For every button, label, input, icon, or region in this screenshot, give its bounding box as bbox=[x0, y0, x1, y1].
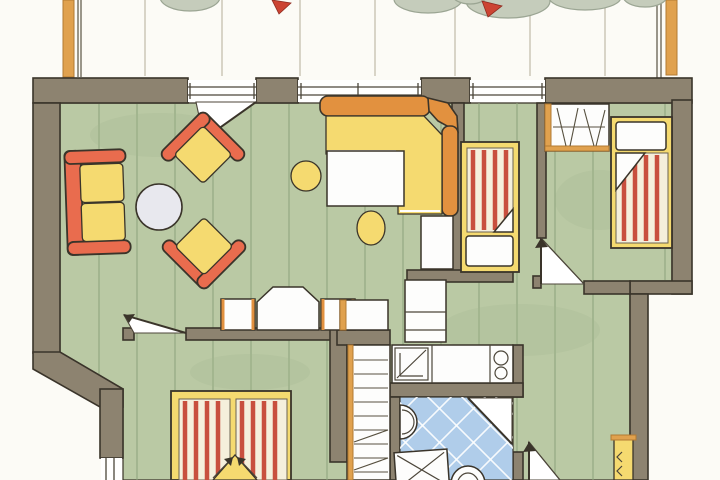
kitchen bbox=[392, 345, 513, 383]
wall-top-right bbox=[545, 78, 692, 103]
bedroom-3 bbox=[171, 391, 291, 480]
wall-bath-top bbox=[390, 383, 523, 397]
wall-closet-band bbox=[337, 330, 390, 345]
side-table bbox=[421, 216, 453, 269]
wall-door-jamb bbox=[533, 276, 541, 288]
pillow bbox=[466, 236, 513, 266]
dining-chair-left bbox=[221, 299, 255, 330]
shelf-column bbox=[347, 345, 390, 480]
wall-closet-vertical bbox=[330, 328, 347, 462]
kitchen-counter bbox=[392, 345, 513, 383]
floor-plan-drawing bbox=[0, 0, 720, 480]
hall-cabinet-tall bbox=[405, 280, 446, 342]
bedroom-1 bbox=[461, 142, 519, 272]
deck-edge-plank-right bbox=[666, 0, 677, 75]
pouf-1 bbox=[291, 161, 321, 191]
floor-plan-canvas bbox=[0, 0, 720, 480]
wall-left-lower bbox=[100, 389, 123, 458]
wardrobe bbox=[545, 104, 609, 151]
wall-right-upper bbox=[672, 100, 692, 294]
sofa bbox=[64, 149, 131, 255]
round-table bbox=[136, 184, 182, 230]
wall-bedroom2-bottom bbox=[584, 281, 630, 294]
wall-top-pier-1 bbox=[256, 78, 298, 103]
hall-cabinet-small bbox=[340, 300, 388, 330]
pouf-2 bbox=[357, 211, 385, 245]
dining-table bbox=[257, 287, 319, 330]
coffee-table bbox=[327, 151, 404, 206]
deck-edge-plank-left bbox=[63, 0, 74, 77]
shower-tray bbox=[394, 449, 450, 480]
pillow bbox=[616, 122, 666, 150]
wall-left bbox=[33, 103, 60, 353]
wall-step-right bbox=[630, 281, 692, 294]
wall-top-left bbox=[33, 78, 188, 103]
wall-bath-right-stub bbox=[513, 452, 523, 480]
coat-rack bbox=[611, 435, 636, 480]
